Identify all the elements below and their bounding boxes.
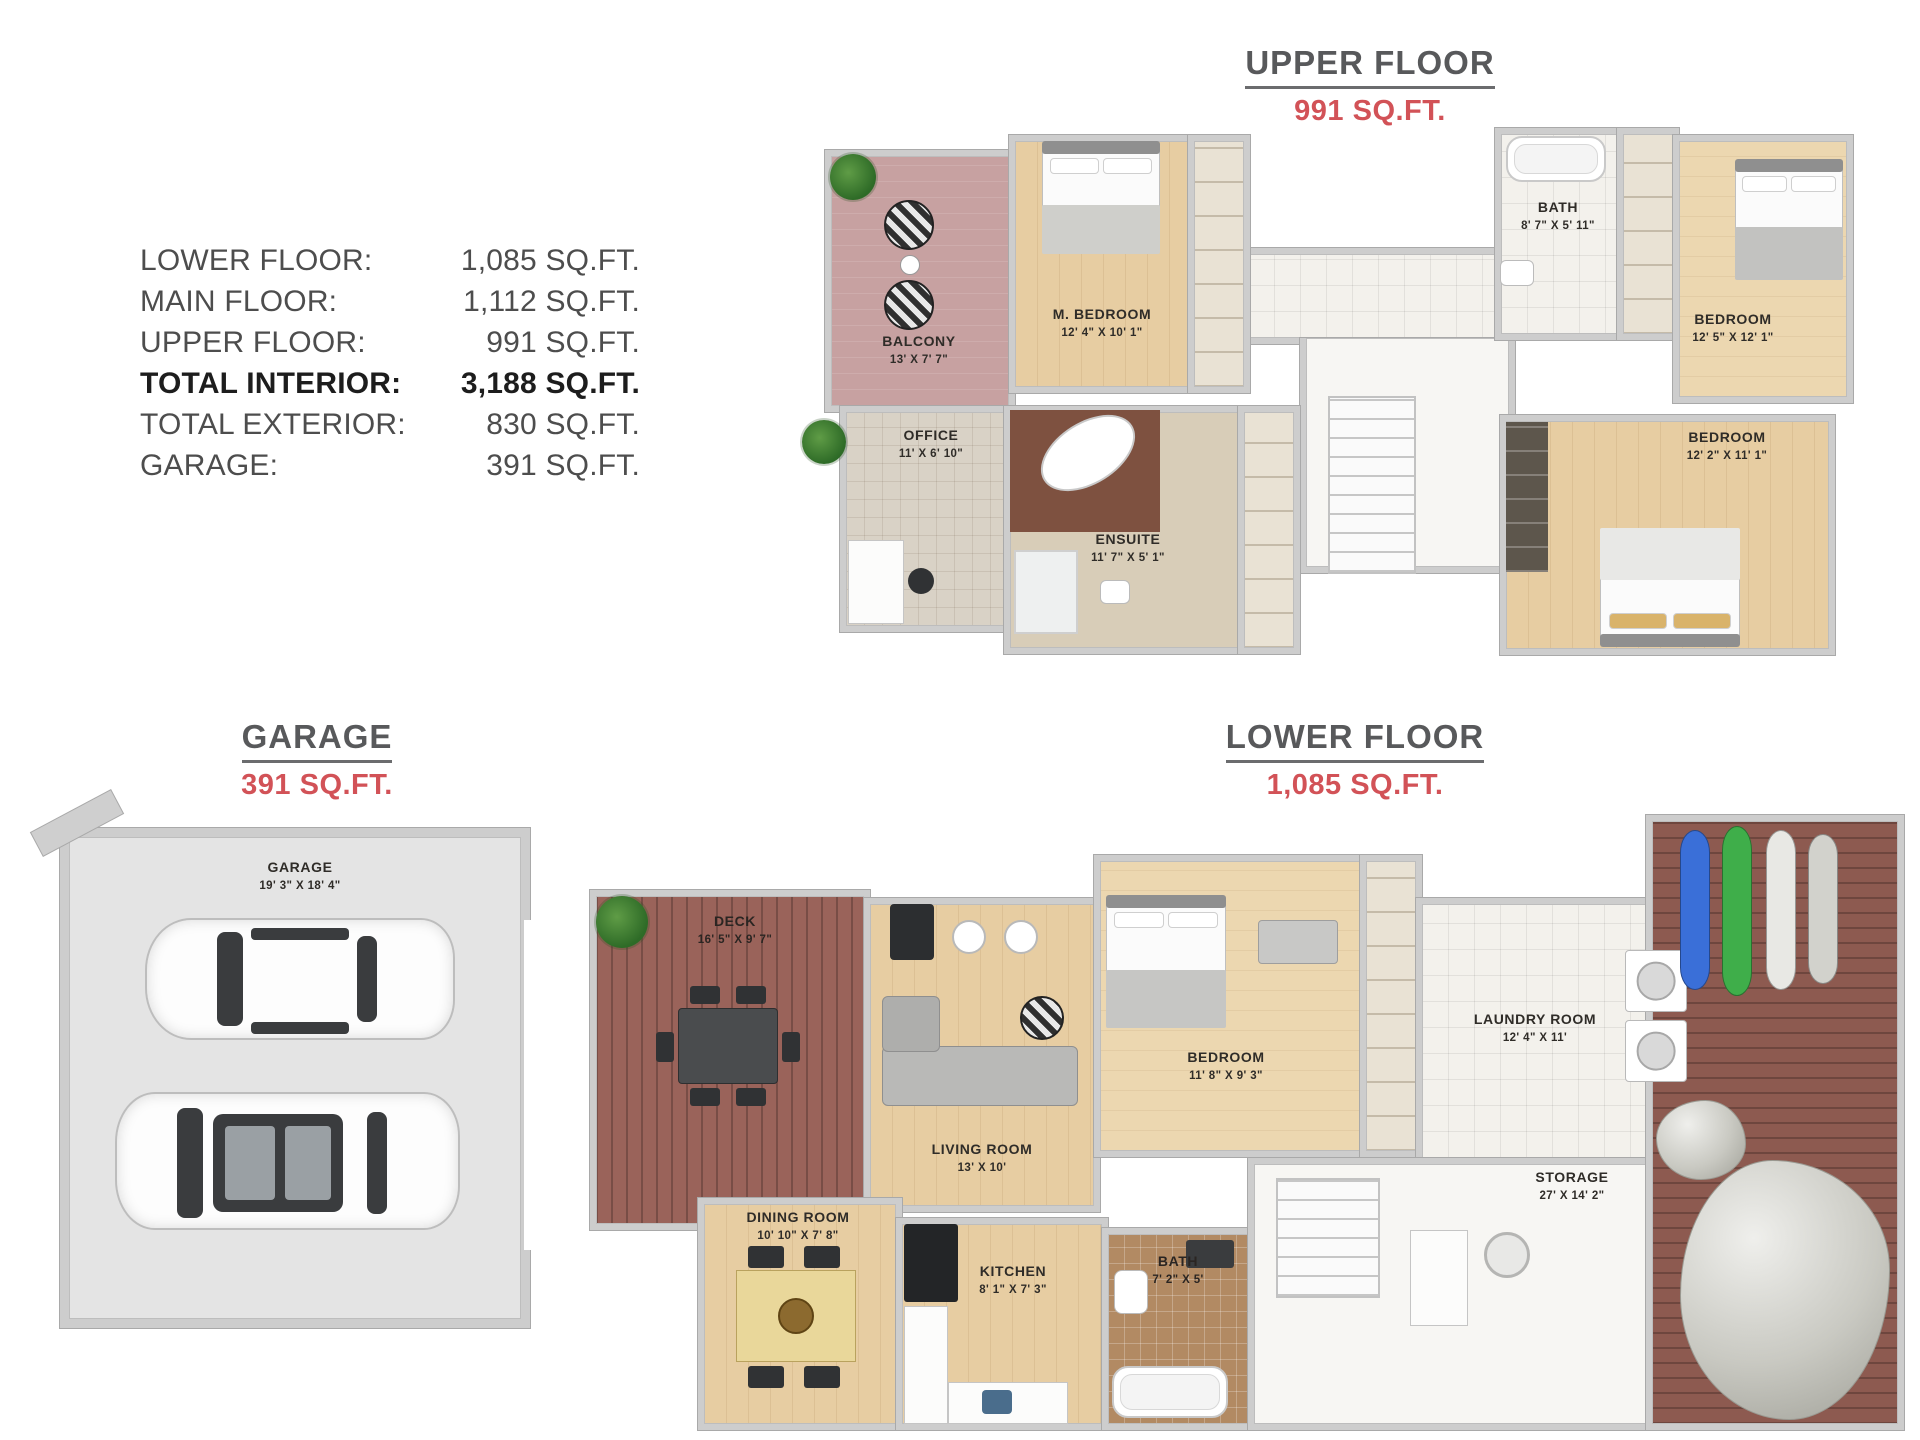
upper-bath-closet — [1617, 128, 1679, 340]
kitchen-counter — [904, 1306, 948, 1424]
staircase — [1328, 396, 1416, 574]
side-table — [1004, 920, 1038, 954]
deck-label: DECK 16' 5" X 9' 7" — [660, 912, 810, 948]
office-name: OFFICE — [866, 426, 996, 446]
upper-hallway — [1248, 248, 1508, 344]
dining-room-label: DINING ROOM 10' 10" X 7' 8" — [708, 1208, 888, 1244]
balcony-table — [900, 255, 920, 275]
deck-name: DECK — [660, 912, 810, 932]
bed — [1106, 896, 1226, 1028]
landscape-rock — [1656, 1100, 1746, 1180]
stats-row-total-interior: TOTAL INTERIOR: 3,188 SQ.FT. — [140, 363, 640, 404]
living-room-name: LIVING ROOM — [902, 1140, 1062, 1160]
bedroom-right-label: BEDROOM 12' 5" X 12' 1" — [1658, 310, 1808, 346]
garage-dims: 19' 3" X 18' 4" — [190, 878, 410, 894]
ensuite-label: ENSUITE 11' 7" X 5' 1" — [1058, 530, 1198, 566]
stats-row-main-floor: MAIN FLOOR: 1,112 SQ.FT. — [140, 281, 640, 322]
master-bed — [1042, 142, 1160, 254]
garage-title-text: GARAGE — [242, 718, 393, 763]
bedroom-right-dims: 12' 5" X 12' 1" — [1658, 330, 1808, 346]
living-room-label: LIVING ROOM 13' X 10' — [902, 1140, 1062, 1176]
laundry-room-dims: 12' 4" X 11' — [1440, 1030, 1630, 1046]
lower-floor-title-text: LOWER FLOOR — [1226, 718, 1484, 763]
office-chair — [908, 568, 934, 594]
garage-plan: GARAGE 19' 3" X 18' 4" — [40, 800, 580, 1360]
dining-chair — [804, 1246, 840, 1268]
deck-chair — [782, 1032, 800, 1062]
office-desk — [848, 540, 904, 624]
stats-value: 391 SQ.FT. — [486, 449, 640, 483]
potted-plant-icon — [802, 420, 846, 464]
bathtub — [1506, 136, 1606, 182]
kitchen-name: KITCHEN — [938, 1262, 1088, 1282]
deck-chair — [736, 986, 766, 1004]
deck-chair — [690, 1088, 720, 1106]
stats-row-total-exterior: TOTAL EXTERIOR: 830 SQ.FT. — [140, 404, 640, 445]
kayak-blue — [1680, 830, 1710, 990]
garage-door-opening — [524, 920, 534, 1250]
lower-bedroom-label: BEDROOM 11' 8" X 9' 3" — [1146, 1048, 1306, 1084]
upper-master-closet — [1188, 135, 1250, 393]
dresser — [1258, 920, 1338, 964]
ensuite-name: ENSUITE — [1058, 530, 1198, 550]
balcony-label: BALCONY 13' X 7' 7" — [855, 332, 983, 368]
dining-chair — [748, 1246, 784, 1268]
stats-label: UPPER FLOOR: — [140, 326, 366, 360]
bedroom-lower-dims: 12' 2" X 11' 1" — [1652, 448, 1802, 464]
stats-row-upper-floor: UPPER FLOOR: 991 SQ.FT. — [140, 322, 640, 363]
outdoor-dining-table — [678, 1008, 778, 1084]
lower-floor-title: LOWER FLOOR 1,085 SQ.FT. — [1215, 718, 1495, 802]
storage-name: STORAGE — [1502, 1168, 1642, 1188]
kayak-gray — [1808, 834, 1838, 984]
bedroom-lower-name: BEDROOM — [1652, 428, 1802, 448]
garage-area-text: 391 SQ.FT. — [212, 769, 422, 802]
deck-chair — [736, 1088, 766, 1106]
kitchen-label: KITCHEN 8' 1" X 7' 3" — [938, 1262, 1088, 1298]
stats-value: 1,112 SQ.FT. — [463, 285, 640, 319]
stats-label: TOTAL INTERIOR: — [140, 367, 401, 401]
lower-bedroom-closet — [1360, 855, 1422, 1157]
balcony-chair — [884, 200, 934, 250]
lower-bath-label: BATH 7' 2" X 5' — [1110, 1252, 1246, 1288]
upper-bath-name: BATH — [1498, 198, 1618, 218]
bathtub — [1112, 1366, 1228, 1418]
stats-label: MAIN FLOOR: — [140, 285, 337, 319]
laundry-room-label: LAUNDRY ROOM 12' 4" X 11' — [1440, 1010, 1630, 1046]
stats-value: 991 SQ.FT. — [486, 326, 640, 360]
upper-bath-label: BATH 8' 7" X 5' 11" — [1498, 198, 1618, 234]
stats-value: 830 SQ.FT. — [486, 408, 640, 442]
storage-dims: 27' X 14' 2" — [1502, 1188, 1642, 1204]
storage-label: STORAGE 27' X 14' 2" — [1502, 1168, 1642, 1204]
sofa — [882, 1046, 1078, 1106]
garage-room — [60, 828, 530, 1328]
dryer — [1625, 1020, 1687, 1082]
living-room-dims: 13' X 10' — [902, 1160, 1062, 1176]
upper-bath-dims: 8' 7" X 5' 11" — [1498, 218, 1618, 234]
car-suv — [115, 1092, 460, 1230]
deck-dims: 16' 5" X 9' 7" — [660, 932, 810, 948]
kitchen-sink — [982, 1390, 1012, 1414]
deck-chair — [656, 1032, 674, 1062]
area-summary: LOWER FLOOR: 1,085 SQ.FT. MAIN FLOOR: 1,… — [140, 240, 640, 486]
lower-floor-plan: DECK 16' 5" X 9' 7" LIVING ROOM 13' X 10… — [590, 800, 1910, 1435]
dining-room-dims: 10' 10" X 7' 8" — [708, 1228, 888, 1244]
office-label: OFFICE 11' X 6' 10" — [866, 426, 996, 462]
dining-chair — [804, 1366, 840, 1388]
storage-counter — [1410, 1230, 1468, 1326]
stats-value: 1,085 SQ.FT. — [461, 244, 640, 278]
stats-label: GARAGE: — [140, 449, 278, 483]
lower-bedroom-dims: 11' 8" X 9' 3" — [1146, 1068, 1306, 1084]
kayak-green — [1722, 826, 1752, 996]
stats-row-garage: GARAGE: 391 SQ.FT. — [140, 445, 640, 486]
sofa-chaise — [882, 996, 940, 1052]
kayak-white — [1766, 830, 1796, 990]
upper-floor-title-text: UPPER FLOOR — [1245, 44, 1494, 89]
bed — [1600, 528, 1740, 646]
lower-bath-name: BATH — [1110, 1252, 1246, 1272]
stats-row-lower-floor: LOWER FLOOR: 1,085 SQ.FT. — [140, 240, 640, 281]
garage-label: GARAGE 19' 3" X 18' 4" — [190, 858, 410, 894]
water-heater — [1484, 1232, 1530, 1278]
side-table — [952, 920, 986, 954]
lower-floor-area-text: 1,085 SQ.FT. — [1215, 769, 1495, 802]
master-bedroom-label: M. BEDROOM 12' 4" X 10' 1" — [1022, 305, 1182, 341]
toilet — [1100, 580, 1130, 604]
garage-name: GARAGE — [190, 858, 410, 878]
stats-label: TOTAL EXTERIOR: — [140, 408, 406, 442]
office-dims: 11' X 6' 10" — [866, 446, 996, 462]
balcony-name: BALCONY — [855, 332, 983, 352]
balcony-dims: 13' X 7' 7" — [855, 352, 983, 368]
balcony-chair — [884, 280, 934, 330]
washer — [1625, 950, 1687, 1012]
potted-plant-icon — [596, 896, 648, 948]
bedroom-right-name: BEDROOM — [1658, 310, 1808, 330]
ensuite-dims: 11' 7" X 5' 1" — [1058, 550, 1198, 566]
upper-linen-closet — [1238, 406, 1300, 654]
dining-room-name: DINING ROOM — [708, 1208, 888, 1228]
kitchen-dims: 8' 1" X 7' 3" — [938, 1282, 1088, 1298]
staircase — [1276, 1178, 1380, 1298]
lower-bath-dims: 7' 2" X 5' — [1110, 1272, 1246, 1288]
accent-chair — [1020, 996, 1064, 1040]
master-bedroom-dims: 12' 4" X 10' 1" — [1022, 325, 1182, 341]
lower-bedroom-name: BEDROOM — [1146, 1048, 1306, 1068]
car-sedan — [145, 918, 455, 1040]
floor-plan-page: { "stats": { "rows": [ { "label": "LOWER… — [0, 0, 1920, 1440]
garage-title: GARAGE 391 SQ.FT. — [212, 718, 422, 802]
stats-label: LOWER FLOOR: — [140, 244, 372, 278]
wardrobe — [1506, 422, 1548, 572]
stats-value: 3,188 SQ.FT. — [461, 367, 640, 401]
centerpiece — [778, 1298, 814, 1334]
master-bedroom-name: M. BEDROOM — [1022, 305, 1182, 325]
dining-chair — [748, 1366, 784, 1388]
toilet — [1500, 260, 1534, 286]
deck-chair — [690, 986, 720, 1004]
bedroom-lower-label: BEDROOM 12' 2" X 11' 1" — [1652, 428, 1802, 464]
tv-console — [890, 904, 934, 960]
upper-floor-plan: BALCONY 13' X 7' 7" M. BEDROOM 12' 4" X … — [800, 110, 1870, 690]
laundry-room-name: LAUNDRY ROOM — [1440, 1010, 1630, 1030]
potted-plant-icon — [830, 154, 876, 200]
bed — [1735, 160, 1843, 280]
